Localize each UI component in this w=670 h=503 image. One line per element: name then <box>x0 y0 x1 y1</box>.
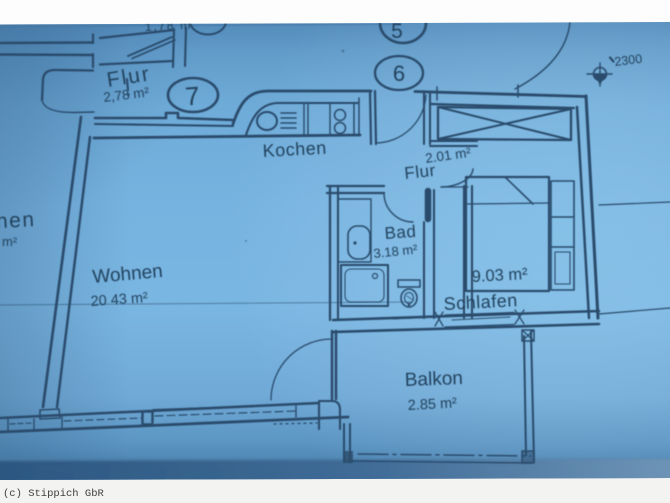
svg-text:5: 5 <box>391 20 403 43</box>
svg-text:Kochen: Kochen <box>262 138 327 161</box>
svg-text:2.85 m²: 2.85 m² <box>407 395 457 414</box>
svg-text:m²: m² <box>2 234 18 249</box>
svg-text:Balkon: Balkon <box>404 368 463 391</box>
svg-text:Flur: Flur <box>403 161 436 183</box>
svg-text:Schlafen: Schlafen <box>443 290 518 314</box>
svg-text:6: 6 <box>393 61 405 86</box>
svg-text:ohnen: ohnen <box>0 208 36 234</box>
svg-text:(c) Stippich GbR: (c) Stippich GbR <box>3 488 105 500</box>
svg-text:Bad: Bad <box>384 222 417 243</box>
svg-text:7: 7 <box>184 81 201 112</box>
svg-text:9.03 m²: 9.03 m² <box>471 265 528 286</box>
